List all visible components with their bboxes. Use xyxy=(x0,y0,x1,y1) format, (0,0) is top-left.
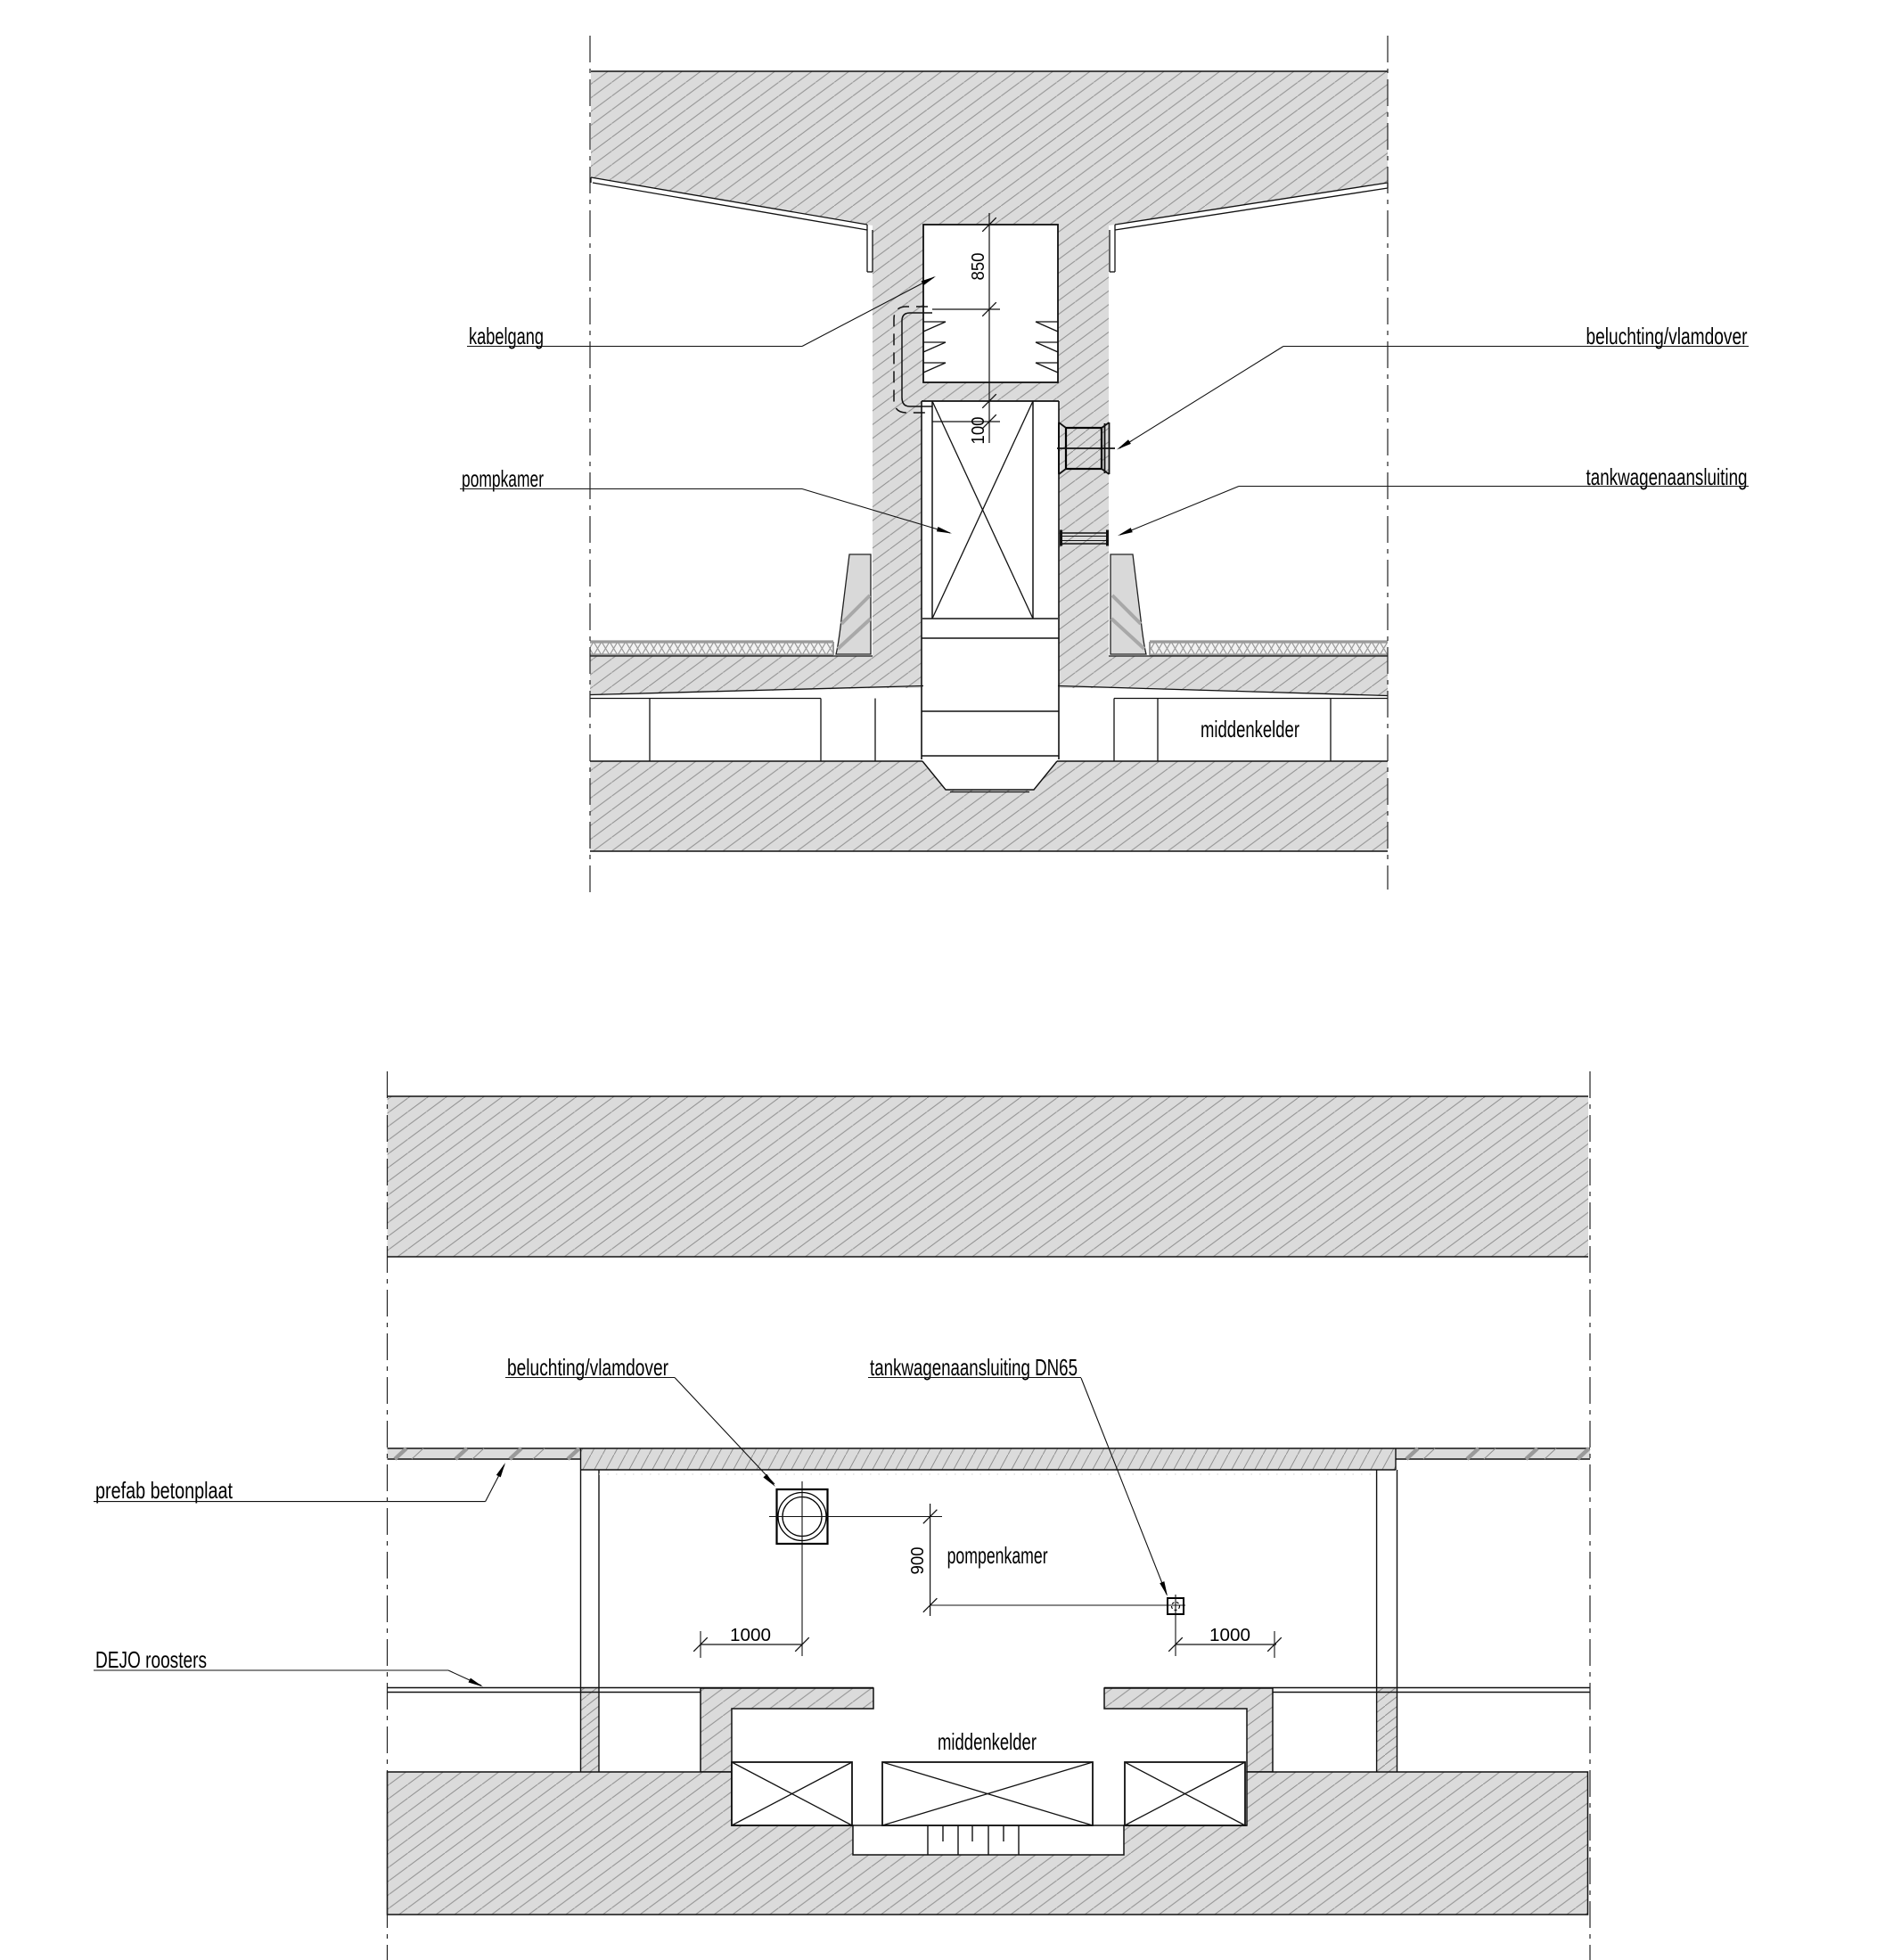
svg-text:middenkelder: middenkelder xyxy=(938,1728,1037,1755)
svg-text:beluchting/vlamdover: beluchting/vlamdover xyxy=(1586,323,1748,349)
svg-text:850: 850 xyxy=(969,253,988,281)
svg-text:1000: 1000 xyxy=(730,1626,771,1645)
svg-text:beluchting/vlamdover: beluchting/vlamdover xyxy=(507,1354,668,1381)
svg-text:prefab betonplaat: prefab betonplaat xyxy=(95,1477,234,1504)
svg-text:DEJO roosters: DEJO roosters xyxy=(95,1646,207,1673)
svg-text:pompkamer: pompkamer xyxy=(462,465,544,492)
svg-text:kabelgang: kabelgang xyxy=(469,323,544,349)
svg-text:100: 100 xyxy=(969,417,988,445)
svg-text:pompenkamer: pompenkamer xyxy=(947,1542,1048,1569)
svg-text:1000: 1000 xyxy=(1209,1626,1250,1645)
svg-text:middenkelder: middenkelder xyxy=(1201,716,1299,742)
svg-text:900: 900 xyxy=(908,1547,928,1575)
svg-text:tankwagenaansluiting DN65: tankwagenaansluiting DN65 xyxy=(870,1354,1078,1381)
